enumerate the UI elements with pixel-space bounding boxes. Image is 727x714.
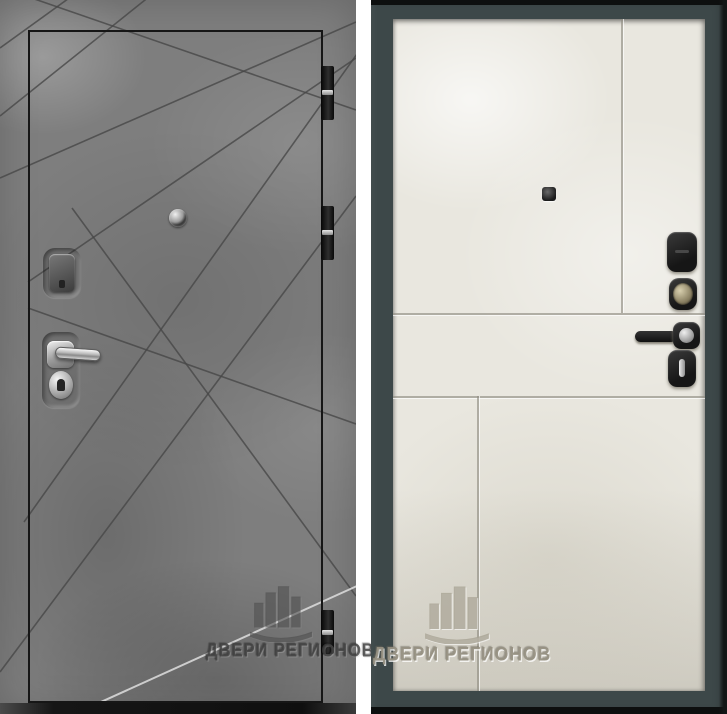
cylinder-knob: [669, 278, 697, 310]
panel-groove-vertical-upper: [621, 19, 623, 313]
hinge-middle: [321, 206, 334, 260]
handle-rosette: [673, 322, 700, 349]
handle-recess: [42, 332, 80, 408]
rosette-cap: [679, 328, 694, 343]
door-product-image: ДВЕРИ РЕГИОНОВ: [0, 0, 727, 714]
hinge-pin: [322, 230, 333, 235]
interior-door-panel: [393, 19, 705, 691]
door-exterior-view: ДВЕРИ РЕГИОНОВ: [0, 0, 356, 714]
cylinder-core: [673, 283, 693, 305]
thumb-turn-knob: [679, 359, 685, 377]
hinge-pin: [322, 630, 333, 635]
lock-escutcheon: [49, 254, 75, 292]
door-interior-view: ДВЕРИ РЕГИОНОВ: [371, 0, 727, 714]
peephole: [169, 209, 187, 227]
escutcheon-slot: [675, 250, 689, 253]
thumb-turn: [668, 350, 696, 387]
hinge-pin: [322, 90, 333, 95]
door-bottom-shadow: [0, 703, 356, 714]
peephole: [542, 187, 556, 201]
keyhole: [57, 379, 65, 391]
lock-cylinder: [49, 371, 73, 399]
photo-edge: [371, 707, 727, 714]
hinge-bottom: [321, 610, 334, 654]
hinge-top: [321, 66, 334, 120]
panel-groove-horizontal-lower: [393, 396, 705, 398]
photo-edge: [719, 0, 727, 714]
lock-escutcheon: [667, 232, 697, 272]
panel-groove-horizontal-upper: [393, 313, 705, 315]
panel-groove-vertical-lower: [477, 396, 479, 691]
photo-edge: [371, 0, 727, 5]
keyway: [59, 280, 65, 288]
lock-escutcheon-recess: [43, 248, 81, 298]
black-lever-handle: [635, 331, 677, 342]
